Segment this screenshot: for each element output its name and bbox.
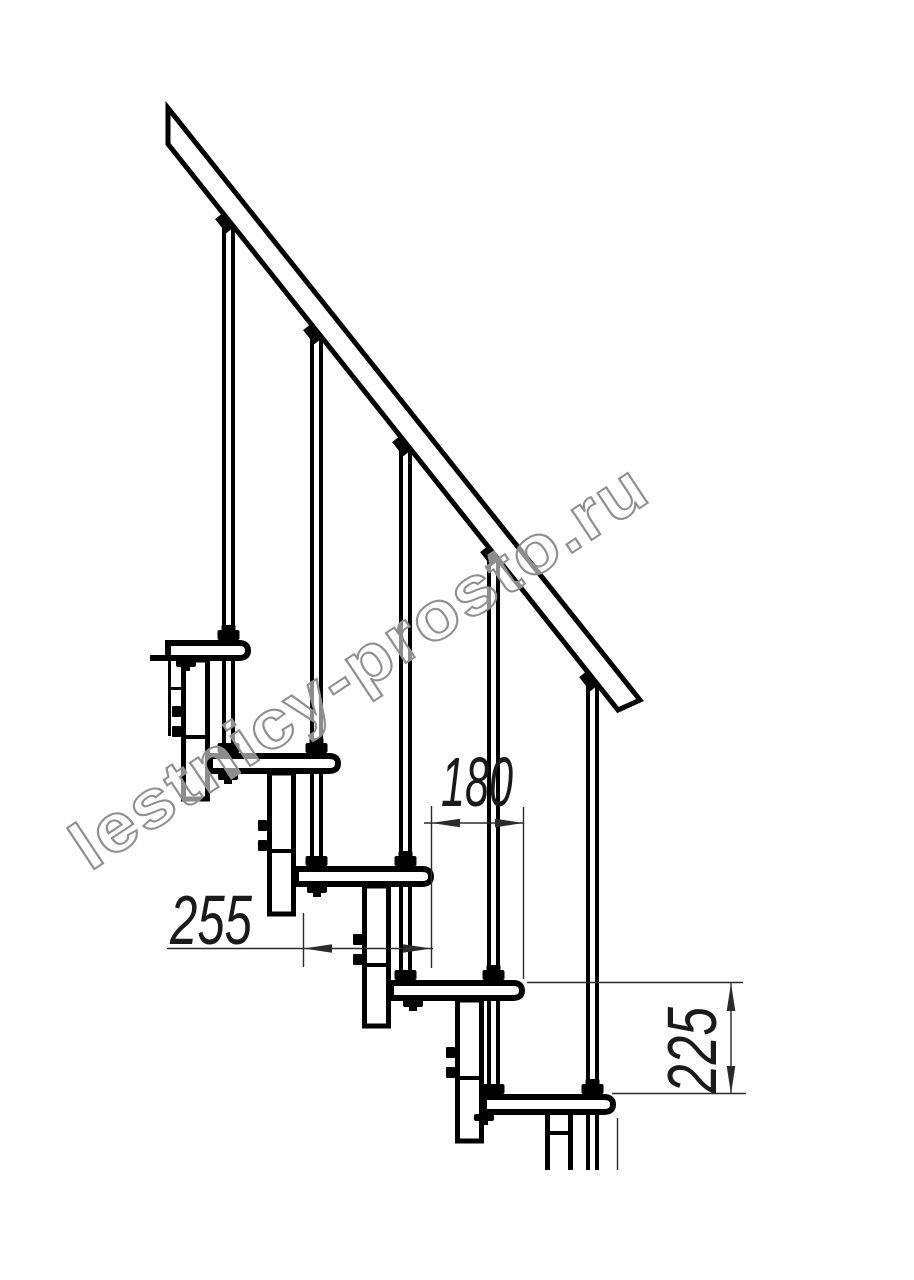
dim-label-225: 225 [653, 1006, 731, 1094]
bolt [172, 706, 181, 717]
baluster-foot [218, 625, 240, 640]
arrowhead [403, 944, 432, 953]
bolt [172, 726, 181, 737]
baluster-foot [483, 965, 505, 980]
bolt [258, 820, 267, 831]
tread [484, 1097, 613, 1112]
cropped-left-structure [150, 658, 181, 736]
bolt [258, 840, 267, 851]
tread-bolt [307, 886, 327, 897]
dim-label-180: 180 [441, 743, 513, 821]
bolt [446, 1067, 455, 1078]
arrowhead [304, 944, 333, 953]
column-module [270, 773, 294, 914]
dim-label-255: 255 [169, 881, 252, 959]
dimension-180: 180 [424, 743, 524, 979]
baluster-foot [395, 970, 417, 980]
baluster-foot [582, 1079, 604, 1094]
baluster-foot [395, 851, 417, 866]
baluster-foot [306, 856, 328, 866]
staircase-section-drawing: 255 180 225 lestnicy-prosto.ru [0, 0, 914, 1280]
dimension-225: 225 [527, 983, 746, 1171]
watermark: lestnicy-prosto.ru [56, 448, 662, 884]
arrowhead [727, 983, 736, 1011]
bolt [353, 934, 362, 945]
tread [296, 869, 431, 884]
technical-drawing-canvas: 255 180 225 lestnicy-prosto.ru [0, 0, 914, 1280]
bolt [446, 1047, 455, 1058]
column-module [365, 886, 389, 1026]
tread [168, 643, 248, 658]
bolt [353, 954, 362, 965]
baluster-foot [483, 1084, 505, 1094]
tread [391, 983, 522, 998]
tread-bolt [403, 1000, 423, 1011]
